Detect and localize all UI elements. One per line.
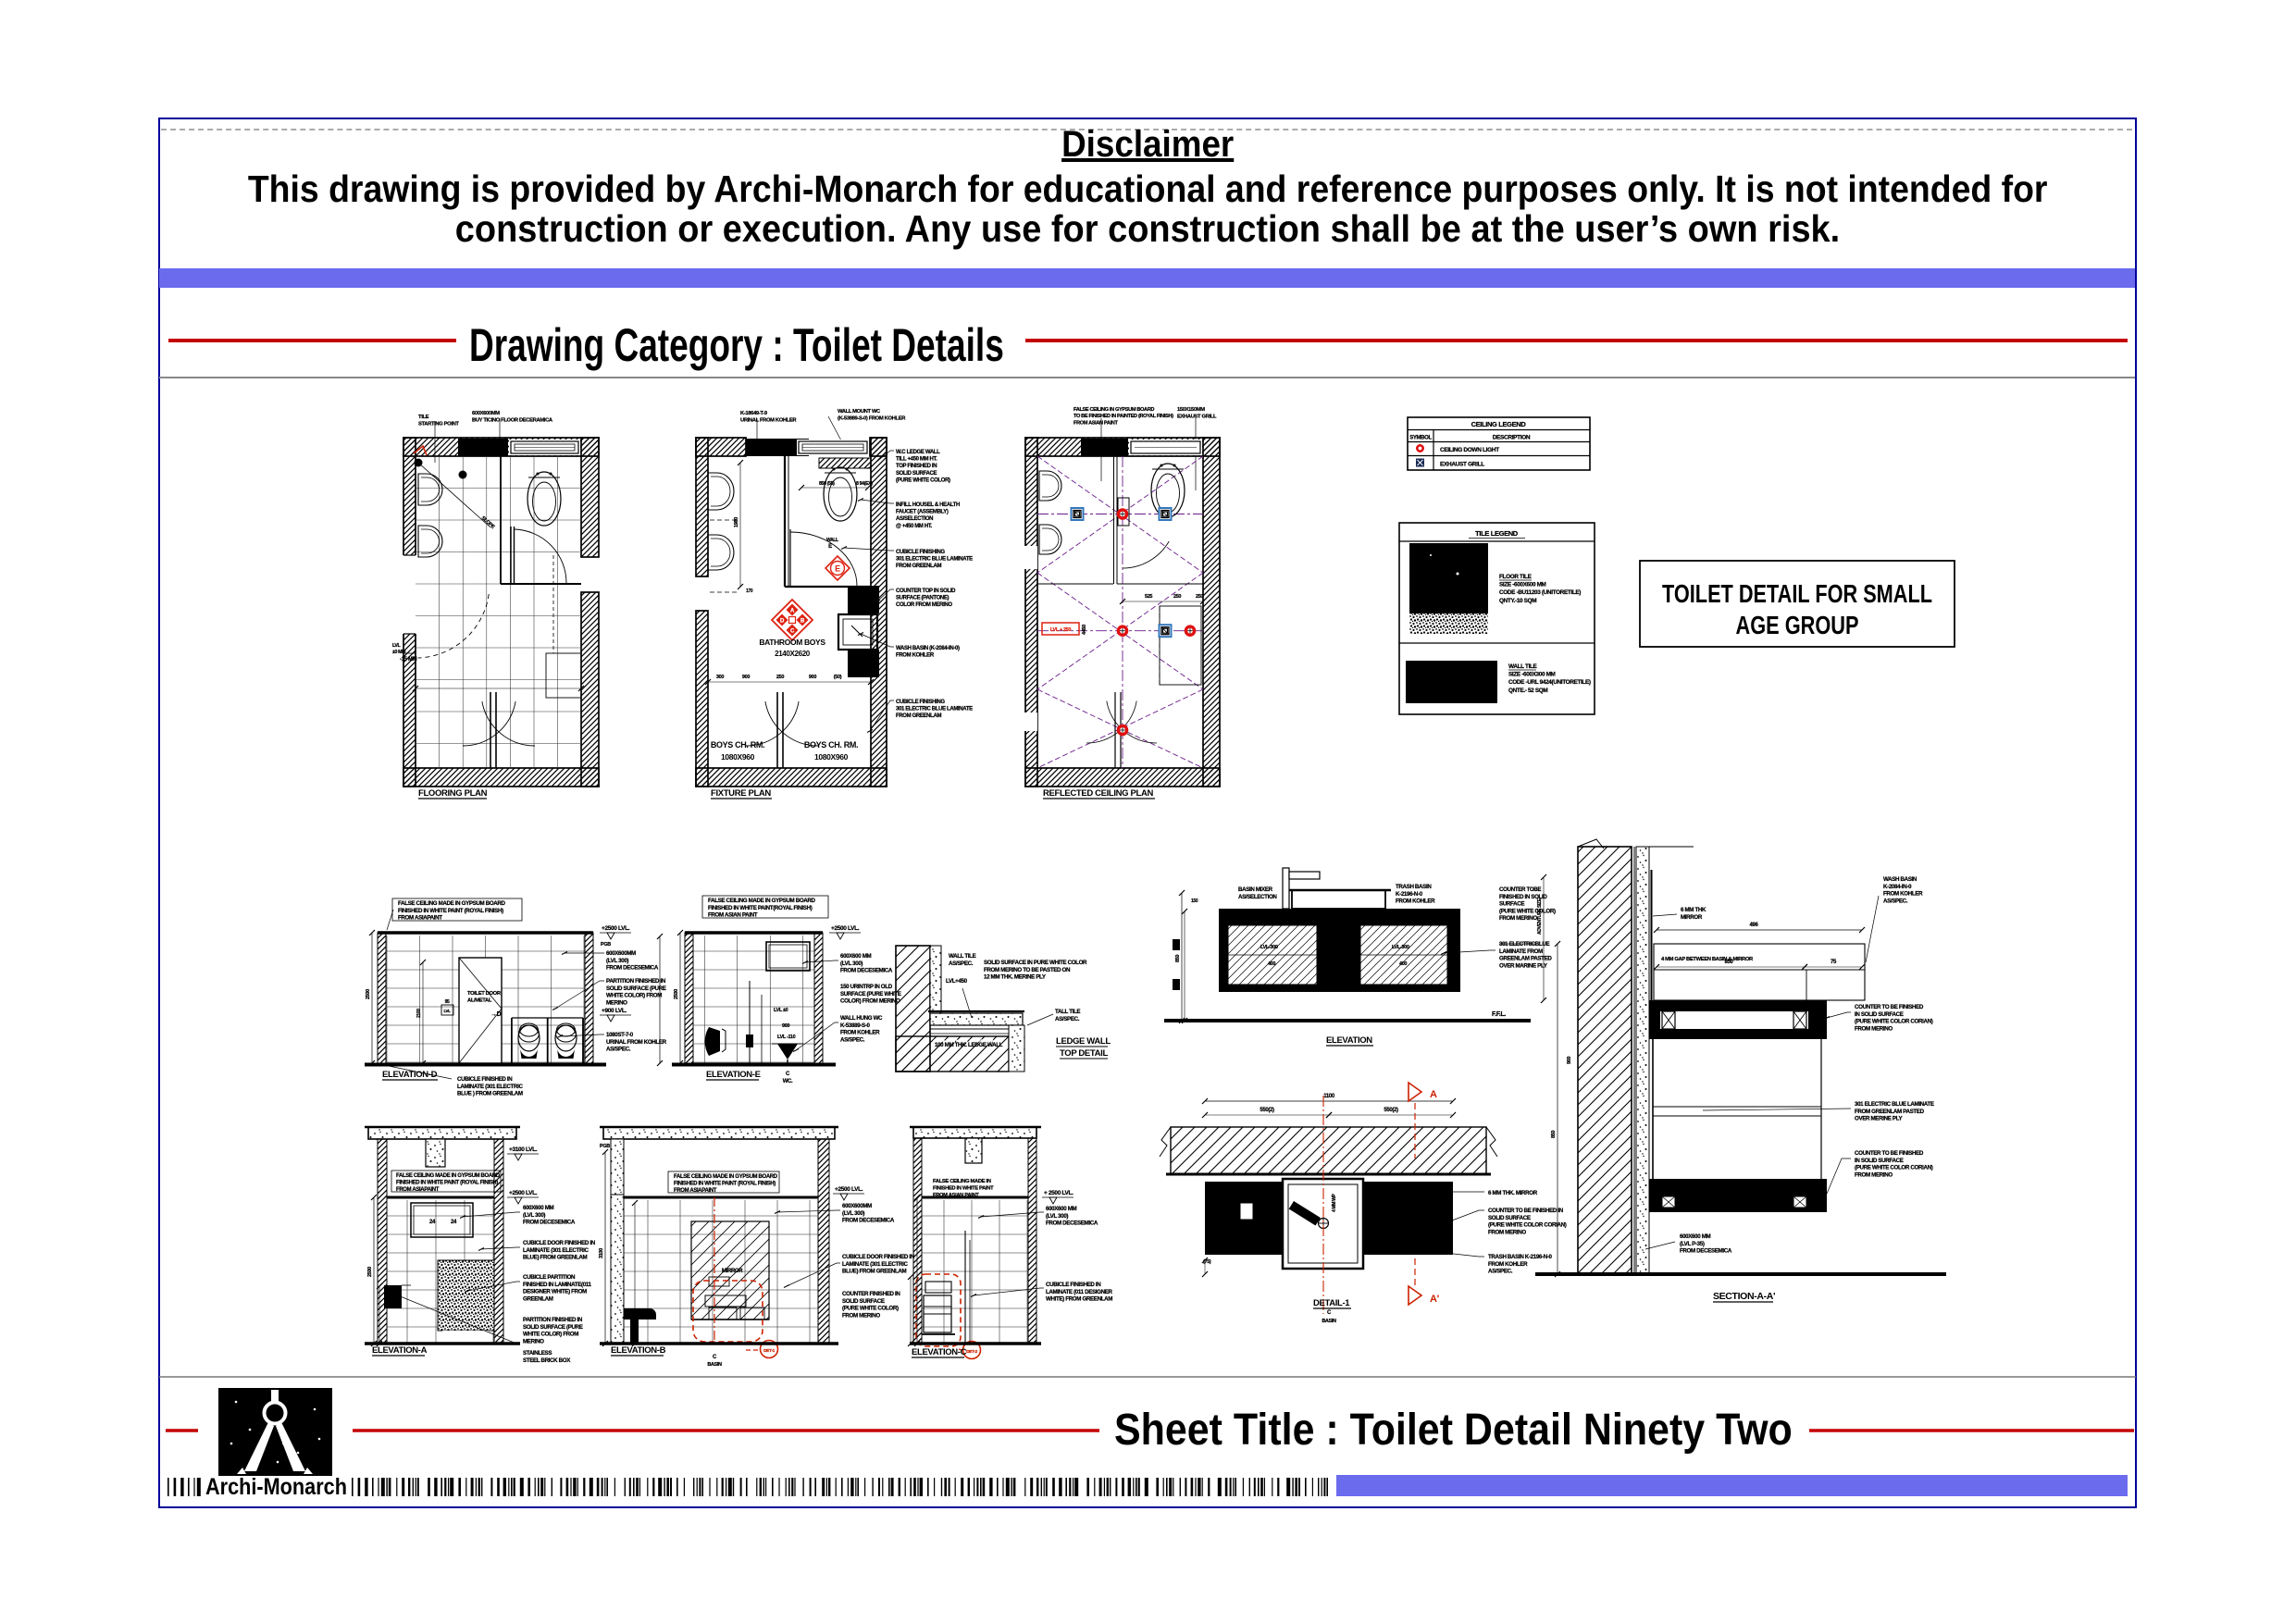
svg-text:FROM DECESEMICA: FROM DECESEMICA [523, 1220, 576, 1226]
svg-text:FALSE CEILING MADE IN GYPSUM B: FALSE CEILING MADE IN GYPSUM BOARD [396, 1173, 501, 1179]
svg-text:3100: 3100 [599, 1248, 604, 1258]
svg-text:250: 250 [776, 675, 784, 680]
svg-text:TOP DETAIL: TOP DETAIL [1060, 1048, 1108, 1059]
svg-text:@ +450 MM HT.: @ +450 MM HT. [896, 524, 932, 529]
svg-text:TOP FINISHED IN: TOP FINISHED IN [896, 464, 937, 469]
svg-text:1980: 1980 [734, 517, 739, 527]
svg-text:550(2): 550(2) [1260, 1108, 1274, 1113]
svg-text:GREENLAM PASTED: GREENLAM PASTED [1499, 956, 1552, 962]
svg-text:TO BE FINISHED IN PAINTED (ROY: TO BE FINISHED IN PAINTED (ROYAL FINISH) [1074, 414, 1173, 419]
svg-text:4450: 4450 [1082, 625, 1087, 635]
svg-text:(LVL 300): (LVL 300) [1046, 1213, 1068, 1220]
svg-text:FALSE CEILING MADE IN GYPSUM B: FALSE CEILING MADE IN GYPSUM BOARD [708, 898, 816, 904]
svg-text:900: 900 [1567, 1057, 1572, 1064]
svg-text:COLOR) FROM MERINO: COLOR) FROM MERINO [840, 998, 900, 1005]
svg-text:±0 MM: ±0 MM [392, 650, 405, 655]
svg-text:600X600 MM: 600X600 MM [1046, 1206, 1076, 1212]
svg-text:FINISHED IN WHITE PAINT (ROYAL: FINISHED IN WHITE PAINT (ROYAL FINISH) [396, 1181, 498, 1186]
svg-text:SYMBOL: SYMBOL [1409, 436, 1432, 441]
svg-text:EXHAUST GRILL: EXHAUST GRILL [1177, 414, 1217, 419]
svg-text:FINISHED IN WHITE PAINT: FINISHED IN WHITE PAINT [933, 1185, 994, 1191]
svg-text:QNTY.-10 SQM: QNTY.-10 SQM [1499, 598, 1536, 604]
svg-text:550(2): 550(2) [1384, 1108, 1398, 1113]
svg-text:STAINLESS: STAINLESS [523, 1350, 552, 1357]
svg-text:TRASH BASIN K-2196-N-0: TRASH BASIN K-2196-N-0 [1488, 1254, 1553, 1260]
svg-text:850: 850 [1551, 1131, 1557, 1138]
svg-text:PGB: PGB [601, 942, 611, 948]
svg-text:301 ELECTRIC BLUE LAMINATE: 301 ELECTRIC BLUE LAMINATE [896, 557, 973, 563]
svg-text:C: C [713, 1355, 717, 1360]
svg-text:WASH BASIN: WASH BASIN [1883, 876, 1917, 883]
svg-text:FROM DECESEMICA: FROM DECESEMICA [606, 965, 659, 972]
svg-text:AS/SPEC.: AS/SPEC. [840, 1036, 865, 1043]
svg-text:150X150MM: 150X150MM [1177, 407, 1205, 413]
svg-text:600X600MM: 600X600MM [472, 411, 500, 416]
svg-text:K-53889-S-0: K-53889-S-0 [840, 1022, 870, 1029]
svg-text:ADVENTURE SIZE: ADVENTURE SIZE [1537, 898, 1543, 935]
svg-text:SURFACE (PURE WHITE: SURFACE (PURE WHITE [840, 991, 901, 997]
svg-text:WALL HUNG WC: WALL HUNG WC [840, 1015, 883, 1022]
svg-text:ELEVATION-A: ELEVATION-A [372, 1345, 428, 1356]
svg-text:QNTE.- 52 SQM: QNTE.- 52 SQM [1508, 688, 1547, 694]
svg-text:900: 900 [782, 1023, 789, 1029]
svg-text:100 MM THK. LEDGE WALL: 100 MM THK. LEDGE WALL [935, 1042, 1003, 1048]
svg-text:IN SOLID SURFACE: IN SOLID SURFACE [1855, 1158, 1904, 1164]
svg-text:FAUCET (ASSEMBLY): FAUCET (ASSEMBLY) [896, 510, 949, 515]
svg-text:ELEVATION-C: ELEVATION-C [912, 1347, 967, 1357]
svg-text:IN SOLID SURFACE: IN SOLID SURFACE [1855, 1011, 1904, 1018]
svg-text:SIZE -600X600 MM: SIZE -600X600 MM [1499, 582, 1546, 588]
svg-text:FALSE CEILING IN GYPSUM BOARD: FALSE CEILING IN GYPSUM BOARD [1074, 407, 1154, 413]
svg-text:LAMINATE (011 DESIGNER: LAMINATE (011 DESIGNER [1046, 1289, 1112, 1295]
svg-text:4 MM GAP BETWEEN BASIN & MIRRO: 4 MM GAP BETWEEN BASIN & MIRROR [1661, 957, 1754, 962]
svg-text:(LVL 300): (LVL 300) [606, 958, 628, 964]
svg-text:1080X960: 1080X960 [721, 752, 755, 762]
svg-text:(LVL 300): (LVL 300) [842, 1210, 864, 1217]
svg-text:FROM MERINO: FROM MERINO [1499, 915, 1537, 922]
svg-text:FROM KOHLER: FROM KOHLER [1396, 898, 1435, 905]
svg-text:COUNTER TO BE FINISHED IN: COUNTER TO BE FINISHED IN [1488, 1208, 1564, 1214]
svg-text:COUNTER FINISHED IN: COUNTER FINISHED IN [842, 1291, 900, 1297]
svg-text:MIRROR: MIRROR [722, 1269, 743, 1274]
svg-text:400: 400 [1268, 961, 1275, 967]
svg-text:SIZE -600X300 MM: SIZE -600X300 MM [1508, 672, 1556, 678]
svg-text:2100: 2100 [416, 1009, 422, 1018]
svg-text:TALL TILE: TALL TILE [1055, 1009, 1080, 1015]
svg-text:DETAIL-1: DETAIL-1 [1313, 1298, 1350, 1308]
svg-text:FROM GREENLAM: FROM GREENLAM [896, 564, 941, 569]
svg-text:A': A' [1430, 1294, 1440, 1305]
svg-text:WHITE) FROM GREENLAM: WHITE) FROM GREENLAM [1046, 1296, 1112, 1303]
svg-text:EXHAUST GRILL: EXHAUST GRILL [1440, 462, 1484, 468]
svg-text:URINAL FROM KOHLER: URINAL FROM KOHLER [740, 417, 797, 423]
svg-text:SOLID SURFACE IN PURE WHITE CO: SOLID SURFACE IN PURE WHITE COLOR [984, 960, 1087, 966]
svg-text:DET-2: DET-2 [966, 1349, 978, 1355]
svg-text:TRASH BASIN: TRASH BASIN [1396, 884, 1432, 890]
svg-text:LVL + 250: LVL + 250 [1050, 627, 1071, 633]
svg-text:850: 850 [1175, 955, 1181, 962]
svg-text:K-2084-IN-0: K-2084-IN-0 [1883, 884, 1912, 890]
svg-text:(PURE WHITE COLOR): (PURE WHITE COLOR) [842, 1306, 899, 1312]
svg-text:DET-1: DET-1 [763, 1348, 776, 1354]
svg-text:LEDGE WALL: LEDGE WALL [1056, 1036, 1111, 1047]
svg-text:2500: 2500 [366, 989, 371, 999]
svg-text:FROM GREENLAM PASTED: FROM GREENLAM PASTED [1855, 1109, 1925, 1115]
svg-text:2500: 2500 [367, 1267, 373, 1277]
svg-text:FIXTURE PLAN: FIXTURE PLAN [711, 788, 771, 799]
svg-text:+2500 LVL.: +2500 LVL. [602, 925, 630, 932]
svg-text:WASH BASIN (K-2084-IN-0): WASH BASIN (K-2084-IN-0) [896, 646, 960, 651]
svg-text:FROM MERINO TO BE PASTED ON: FROM MERINO TO BE PASTED ON [984, 967, 1071, 973]
svg-text:LAMINATE (301 ELECTRIC: LAMINATE (301 ELECTRIC [842, 1261, 908, 1268]
svg-text:LVL-300: LVL-300 [1260, 945, 1278, 950]
svg-text:(PURE WHITE COLOR): (PURE WHITE COLOR) [896, 477, 950, 483]
svg-text:600X600MM: 600X600MM [606, 950, 636, 957]
svg-text:LVL: LVL [392, 643, 402, 649]
svg-text:1080X960: 1080X960 [814, 752, 849, 762]
svg-text:BATHROOM BOYS: BATHROOM BOYS [759, 638, 825, 647]
svg-text:K-18649-T-9: K-18649-T-9 [740, 411, 768, 416]
svg-text:PARTITION FINISHED IN: PARTITION FINISHED IN [523, 1317, 583, 1323]
svg-text:SOLID SURFACE: SOLID SURFACE [842, 1298, 885, 1305]
svg-text:(PURE WHITE COLOR CORIAN): (PURE WHITE COLOR CORIAN) [1488, 1222, 1567, 1229]
svg-text:PARTITION FINISHED IN: PARTITION FINISHED IN [606, 978, 666, 985]
svg-text:FALSE CEILING MADE IN GYPSUM B: FALSE CEILING MADE IN GYPSUM BOARD [398, 900, 506, 907]
svg-text:FROM DECESEMICA: FROM DECESEMICA [1680, 1248, 1732, 1255]
svg-text:AS/SPEC.: AS/SPEC. [1055, 1016, 1080, 1022]
svg-text:FROM MERINO: FROM MERINO [1488, 1229, 1526, 1235]
svg-text:FROM KOHLER: FROM KOHLER [1883, 891, 1923, 898]
svg-text:COUNTER TO BE FINISHED: COUNTER TO BE FINISHED [1855, 1004, 1924, 1010]
svg-text:(PURE WHITE COLOR): (PURE WHITE COLOR) [1499, 908, 1556, 914]
svg-text:8 94(EX): 8 94(EX) [856, 481, 873, 487]
svg-text:ELEVATION: ELEVATION [1326, 1035, 1372, 1046]
svg-text:AS/SPEC.: AS/SPEC. [949, 960, 974, 967]
svg-text:BUY TICINO FLOOR DECERAMICA: BUY TICINO FLOOR DECERAMICA [472, 417, 553, 423]
svg-text:WALL MOUNT WC: WALL MOUNT WC [838, 409, 881, 415]
svg-text:(PURE WHITE COLOR CORIAN): (PURE WHITE COLOR CORIAN) [1855, 1019, 1933, 1025]
svg-text:SURFACE: SURFACE [1499, 901, 1524, 908]
svg-text:WALL TILE: WALL TILE [949, 953, 976, 960]
svg-text:2500: 2500 [674, 989, 679, 999]
svg-text:6 MM THK: 6 MM THK [1681, 907, 1706, 913]
svg-text:TILL +450 MM HT.: TILL +450 MM HT. [896, 457, 937, 463]
svg-text:AGE GROUP: AGE GROUP [1736, 611, 1859, 639]
svg-text:FINISHED IN WHITE PAINT(ROYAL: FINISHED IN WHITE PAINT(ROYAL FINISH) [708, 905, 813, 911]
svg-text:+2500 LVL.: +2500 LVL. [831, 925, 860, 932]
svg-text:REFLECTED CEILING PLAN: REFLECTED CEILING PLAN [1043, 788, 1153, 799]
svg-text:ELEVATION-D: ELEVATION-D [382, 1070, 438, 1080]
svg-text:SOLID SURFACE: SOLID SURFACE [896, 471, 937, 477]
svg-text:COUNTER TOBE: COUNTER TOBE [1499, 886, 1541, 893]
svg-text:12 MM THK. MERINE PLY: 12 MM THK. MERINE PLY [984, 974, 1047, 981]
svg-text:+2500 LVL.: +2500 LVL. [509, 1190, 538, 1196]
svg-text:1100: 1100 [1323, 1094, 1335, 1099]
svg-text:ELEVATION-B: ELEVATION-B [611, 1345, 666, 1356]
svg-text:SOLID SURFACE (PURE: SOLID SURFACE (PURE [523, 1324, 583, 1331]
svg-text:FROM KOHLER: FROM KOHLER [896, 653, 935, 659]
svg-text:150: 150 [1191, 898, 1198, 904]
svg-text:FALSE CEILING MADE IN: FALSE CEILING MADE IN [933, 1179, 991, 1184]
svg-text:4 MM WP: 4 MM WP [1332, 1193, 1337, 1212]
svg-text:150 URINTRP IN OLD: 150 URINTRP IN OLD [840, 984, 893, 990]
svg-text:COLOR FROM MERINO: COLOR FROM MERINO [896, 602, 952, 608]
svg-text:FROM MERINO: FROM MERINO [1855, 1025, 1893, 1032]
svg-text:E: E [835, 564, 840, 574]
svg-text:(LVL 300): (LVL 300) [523, 1212, 545, 1219]
svg-text:FINISHED IN LAMINATE(011: FINISHED IN LAMINATE(011 [523, 1282, 592, 1288]
svg-text:FROM MERINO: FROM MERINO [1855, 1171, 1893, 1178]
svg-text:400: 400 [1399, 961, 1407, 967]
svg-text:INFILL HOUSEL & HEALTH: INFILL HOUSEL & HEALTH [896, 502, 960, 508]
svg-text:FINISHED IN WHITE PAINT (ROYAL: FINISHED IN WHITE PAINT (ROYAL FINISH) [398, 908, 503, 914]
svg-text:AS/SPEC.: AS/SPEC. [606, 1047, 631, 1053]
svg-text:BLUE ) FROM GREENLAM: BLUE ) FROM GREENLAM [457, 1091, 523, 1097]
svg-text:TILE LEGEND: TILE LEGEND [1475, 529, 1519, 538]
svg-text:AS/SELECTION: AS/SELECTION [896, 516, 933, 522]
svg-text:(K-53889-S-0) FROM KOHLER: (K-53889-S-0) FROM KOHLER [838, 415, 906, 421]
svg-text:BOYS CH. RM.: BOYS CH. RM. [804, 740, 858, 750]
svg-text:1080ST-7-0: 1080ST-7-0 [606, 1032, 634, 1038]
svg-text:LAMINATE FROM: LAMINATE FROM [1499, 948, 1543, 955]
svg-text:TILE: TILE [418, 415, 429, 420]
svg-text:OVER MARINE PLY: OVER MARINE PLY [1499, 962, 1548, 969]
svg-text:BASIN MIXER: BASIN MIXER [1238, 886, 1273, 893]
svg-text:C: C [786, 1072, 790, 1077]
svg-text:W.C LEDGE WALL: W.C LEDGE WALL [896, 450, 940, 455]
svg-text:E: E [828, 544, 832, 550]
svg-text:600X600MM: 600X600MM [842, 1203, 872, 1209]
svg-text:COUNTER TOP IN SOLID: COUNTER TOP IN SOLID [896, 588, 956, 594]
svg-text:CUBICLE DOOR FINISHED IN: CUBICLE DOOR FINISHED IN [523, 1240, 596, 1246]
svg-text:+900 LVL.: +900 LVL. [602, 1008, 627, 1014]
svg-text:BASIN: BASIN [1322, 1319, 1336, 1324]
svg-text:FROM ASIAN PAINT: FROM ASIAN PAINT [1074, 420, 1118, 426]
svg-text:FROM KOHLER: FROM KOHLER [840, 1030, 880, 1036]
svg-text:OVER MERINE PLY: OVER MERINE PLY [1855, 1116, 1903, 1122]
svg-text:AL/METAL: AL/METAL [467, 997, 492, 1003]
svg-text:95: 95 [445, 999, 450, 1005]
svg-text:(LVL 300): (LVL 300) [840, 960, 863, 967]
svg-text:AS/SPEC.: AS/SPEC. [1883, 898, 1908, 904]
svg-text:FINISHED IN WHITE PAINT (ROYAL: FINISHED IN WHITE PAINT (ROYAL FINISH) [674, 1182, 776, 1187]
svg-text:K-2196-N-0: K-2196-N-0 [1396, 891, 1423, 898]
svg-text:301 ELECTRIC BLUE LAMINATE: 301 ELECTRIC BLUE LAMINATE [1855, 1101, 1934, 1108]
svg-text:LAMINATE (301 ELECTRIC: LAMINATE (301 ELECTRIC [457, 1084, 523, 1090]
svg-text:850 (55): 850 (55) [819, 481, 835, 487]
svg-text:FROM DECESEMICA: FROM DECESEMICA [840, 968, 893, 974]
svg-text:WHITE COLOR) FROM: WHITE COLOR) FROM [606, 993, 662, 999]
svg-text:COUNTER TO BE FINISHED: COUNTER TO BE FINISHED [1855, 1150, 1924, 1157]
svg-text:WHITE COLOR) FROM: WHITE COLOR) FROM [523, 1332, 578, 1338]
svg-text:CUBICLE FINISHED IN: CUBICLE FINISHED IN [457, 1076, 513, 1083]
svg-text:75: 75 [1831, 960, 1837, 965]
svg-text:600X600 MM: 600X600 MM [840, 953, 871, 960]
svg-text:SURFACE (PANTONE): SURFACE (PANTONE) [896, 596, 949, 601]
svg-text:DESCRIPTION: DESCRIPTION [1493, 435, 1531, 441]
svg-text:FROM MERINO: FROM MERINO [842, 1312, 880, 1319]
svg-text:-15 MM: -15 MM [400, 657, 417, 663]
svg-text:300: 300 [716, 675, 724, 680]
svg-text:FROM DECESEMICA: FROM DECESEMICA [1046, 1220, 1098, 1227]
svg-text:STEEL BRICK BOX: STEEL BRICK BOX [523, 1357, 571, 1364]
svg-text:LVL ±0: LVL ±0 [774, 1008, 788, 1013]
svg-text:WALL TILE: WALL TILE [1508, 663, 1538, 670]
svg-text:CUBICLE FINISHING: CUBICLE FINISHING [896, 550, 945, 555]
svg-text:900: 900 [742, 675, 750, 680]
svg-text:LVL -110: LVL -110 [777, 1035, 796, 1040]
svg-text:24: 24 [429, 1220, 436, 1225]
svg-text:250: 250 [1196, 594, 1203, 600]
svg-text:GREENLAM: GREENLAM [523, 1295, 553, 1302]
svg-text:BLUE) FROM GREENLAM: BLUE) FROM GREENLAM [842, 1269, 907, 1275]
svg-text:900: 900 [809, 675, 816, 680]
svg-text:FLOORING PLAN: FLOORING PLAN [418, 788, 488, 799]
svg-text:LVL: LVL [443, 1009, 451, 1013]
svg-text:LVL+450: LVL+450 [946, 978, 968, 985]
svg-text:301 ELECTRICBLUE: 301 ELECTRICBLUE [1499, 941, 1549, 948]
svg-text:CUBICLE DOOR FINISHED IN: CUBICLE DOOR FINISHED IN [842, 1254, 915, 1260]
svg-text:+3100 LVL.: +3100 LVL. [509, 1146, 538, 1153]
svg-text:2140X2620: 2140X2620 [775, 650, 811, 658]
svg-text:600X600 MM: 600X600 MM [1680, 1233, 1710, 1240]
svg-text:CODE -URL 9424(UNITORETILE): CODE -URL 9424(UNITORETILE) [1508, 679, 1591, 686]
svg-text:(LVL P-35): (LVL P-35) [1680, 1241, 1705, 1247]
svg-text:SOLID SURFACE: SOLID SURFACE [1488, 1215, 1531, 1221]
svg-text:FROM DECESEMICA: FROM DECESEMICA [842, 1218, 895, 1224]
svg-text:BOYS CH. RM.: BOYS CH. RM. [711, 740, 764, 750]
svg-text:170: 170 [746, 588, 753, 594]
svg-text:525: 525 [1145, 594, 1152, 600]
svg-text:FROM KOHLER: FROM KOHLER [1488, 1261, 1528, 1268]
svg-text:CUBICLE FINISHING: CUBICLE FINISHING [896, 700, 945, 705]
svg-text:TOILET DOOR: TOILET DOOR [467, 991, 502, 997]
svg-text:PGB: PGB [600, 1144, 610, 1149]
svg-text:C: C [1327, 1310, 1332, 1316]
svg-text:MERINO: MERINO [606, 999, 627, 1006]
svg-text:AS/SELECTION: AS/SELECTION [1238, 894, 1277, 900]
svg-text:BLUE) FROM GREENLAM: BLUE) FROM GREENLAM [523, 1255, 588, 1261]
svg-text:TOILET DETAIL FOR SMALL: TOILET DETAIL FOR SMALL [1662, 579, 1932, 608]
svg-text:DESIGNER WHITE) FROM: DESIGNER WHITE) FROM [523, 1289, 587, 1295]
svg-text:CEILING DOWN LIGHT: CEILING DOWN LIGHT [1440, 447, 1499, 453]
svg-text:URINAL FROM KOHLER: URINAL FROM KOHLER [606, 1039, 667, 1046]
svg-text:CEILING LEGEND: CEILING LEGEND [1471, 420, 1527, 428]
svg-text:+2500 LVL.: +2500 LVL. [835, 1186, 863, 1193]
svg-text:ELEVATION-E: ELEVATION-E [706, 1070, 761, 1080]
svg-text:FROM ASIAN PAINT: FROM ASIAN PAINT [708, 912, 758, 919]
svg-text:FLOOR TILE: FLOOR TILE [1499, 574, 1533, 580]
svg-text:(PURE WHITE COLOR CORIAN): (PURE WHITE COLOR CORIAN) [1855, 1165, 1933, 1171]
svg-text:A: A [1430, 1089, 1437, 1100]
svg-text:SOLID SURFACE (PURE: SOLID SURFACE (PURE [606, 985, 666, 992]
svg-text:FROM ASIAPAINT: FROM ASIAPAINT [398, 915, 442, 922]
svg-text:STARTING POINT: STARTING POINT [418, 421, 459, 427]
svg-text:MERINO: MERINO [523, 1338, 544, 1344]
svg-text:SECTION-A-A': SECTION-A-A' [1713, 1291, 1775, 1302]
svg-text:250: 250 [1173, 594, 1181, 600]
svg-text:BASIN: BASIN [707, 1362, 722, 1368]
svg-text:CODE -BU11203 (UNITORETILE): CODE -BU11203 (UNITORETILE) [1499, 589, 1581, 596]
svg-text:LVL-300: LVL-300 [1392, 945, 1409, 950]
svg-text:CUBICLE PARTITION: CUBICLE PARTITION [523, 1274, 576, 1281]
svg-text:6 MM THK. MIRROR: 6 MM THK. MIRROR [1488, 1190, 1538, 1196]
svg-text:WC.: WC. [783, 1079, 793, 1084]
svg-text:(50): (50) [834, 675, 842, 680]
svg-text:496: 496 [1750, 923, 1759, 928]
svg-text:WALL: WALL [826, 538, 838, 543]
svg-text:600X600 MM: 600X600 MM [523, 1205, 553, 1211]
svg-text:F.F.L.: F.F.L. [1492, 1011, 1506, 1018]
svg-text:SLOPE: SLOPE [480, 515, 496, 530]
svg-text:24: 24 [451, 1220, 457, 1225]
svg-text:AS/SPEC.: AS/SPEC. [1488, 1269, 1513, 1275]
svg-text:FROM GREENLAM: FROM GREENLAM [896, 713, 941, 719]
svg-text:LAMINATE (301 ELECTRIC: LAMINATE (301 ELECTRIC [523, 1247, 589, 1254]
svg-text:MIRROR: MIRROR [1681, 914, 1703, 921]
svg-text:FALSE CEILING MADE IN GYPSUM B: FALSE CEILING MADE IN GYPSUM BOARD [674, 1174, 778, 1180]
svg-text:CUBICLE FINISHED IN: CUBICLE FINISHED IN [1046, 1282, 1101, 1288]
svg-text:+ 2500 LVL.: + 2500 LVL. [1044, 1190, 1074, 1196]
svg-text:→D: →D [490, 1011, 502, 1018]
svg-text:301 ELECTRIC BLUE LAMINATE: 301 ELECTRIC BLUE LAMINATE [896, 707, 973, 712]
